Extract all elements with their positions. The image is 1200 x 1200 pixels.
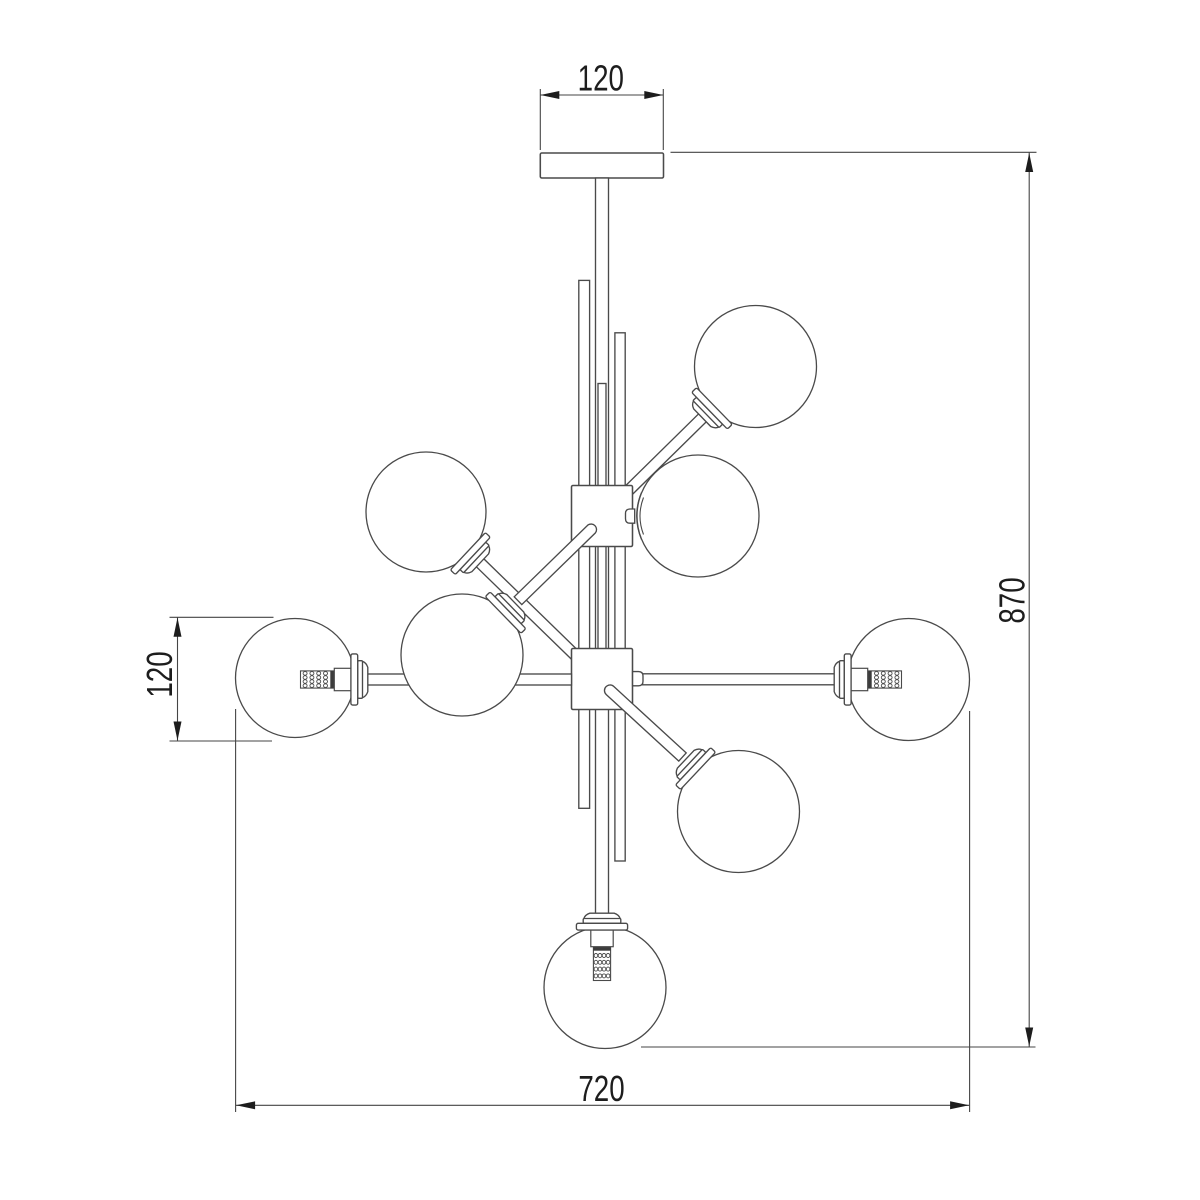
- svg-text:120: 120: [139, 651, 180, 697]
- svg-text:870: 870: [992, 577, 1033, 623]
- svg-text:720: 720: [578, 1068, 624, 1109]
- svg-text:120: 120: [578, 58, 624, 99]
